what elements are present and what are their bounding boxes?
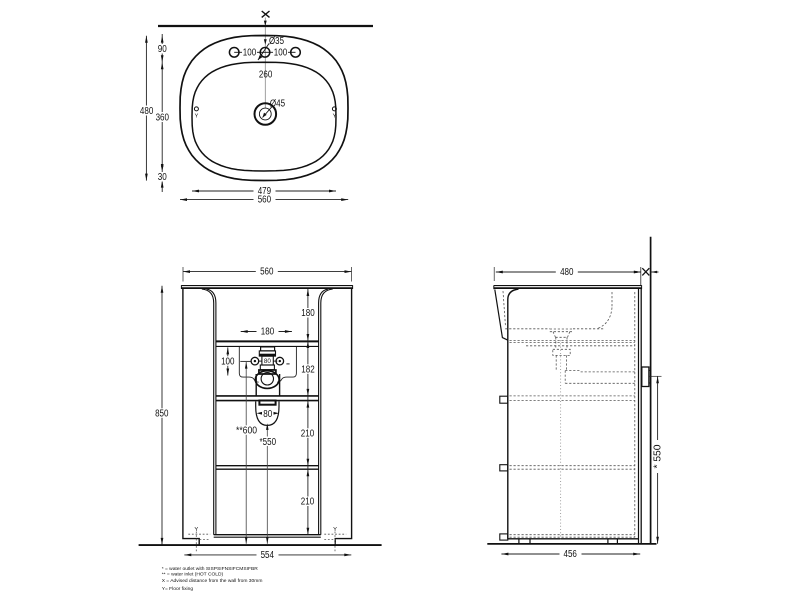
- svg-text:850: 850: [155, 408, 169, 419]
- svg-text:Y: Y: [333, 113, 337, 119]
- svg-text:100: 100: [243, 47, 257, 58]
- svg-text:554: 554: [261, 550, 275, 561]
- svg-text:Y: Y: [195, 113, 199, 119]
- svg-text:480: 480: [560, 267, 574, 278]
- svg-text:260: 260: [259, 70, 273, 81]
- svg-text:180: 180: [261, 327, 275, 338]
- svg-text:560: 560: [258, 195, 272, 206]
- svg-text:80: 80: [263, 409, 272, 420]
- svg-text:X = Advised distance from the: X = Advised distance from the wall from …: [162, 578, 263, 584]
- svg-text:100: 100: [221, 356, 235, 367]
- svg-text:* = water outlet with SISPSIFN: * = water outlet with SISPSIFNSIFCMSIFBR: [162, 566, 259, 572]
- svg-text:**600: **600: [236, 426, 257, 437]
- svg-text:182: 182: [301, 364, 315, 375]
- svg-text:*550: *550: [260, 437, 277, 448]
- svg-text:560: 560: [260, 267, 274, 278]
- svg-text:** = water inlet (HOT COLD): ** = water inlet (HOT COLD): [162, 572, 224, 578]
- svg-text:210: 210: [301, 428, 315, 439]
- svg-text:480: 480: [140, 106, 154, 117]
- svg-text:210: 210: [301, 497, 315, 508]
- svg-text:456: 456: [564, 549, 578, 560]
- svg-text:100: 100: [274, 47, 288, 58]
- svg-text:Ø45: Ø45: [270, 99, 286, 110]
- svg-text:Ø35: Ø35: [269, 36, 284, 47]
- svg-text:360: 360: [156, 113, 170, 124]
- svg-text:90: 90: [158, 44, 167, 55]
- svg-text:Y= Floor fixing: Y= Floor fixing: [162, 586, 194, 592]
- svg-text:80: 80: [264, 358, 272, 365]
- svg-text:* 550: * 550: [653, 444, 664, 468]
- svg-text:30: 30: [158, 172, 167, 183]
- svg-text:180: 180: [301, 308, 315, 319]
